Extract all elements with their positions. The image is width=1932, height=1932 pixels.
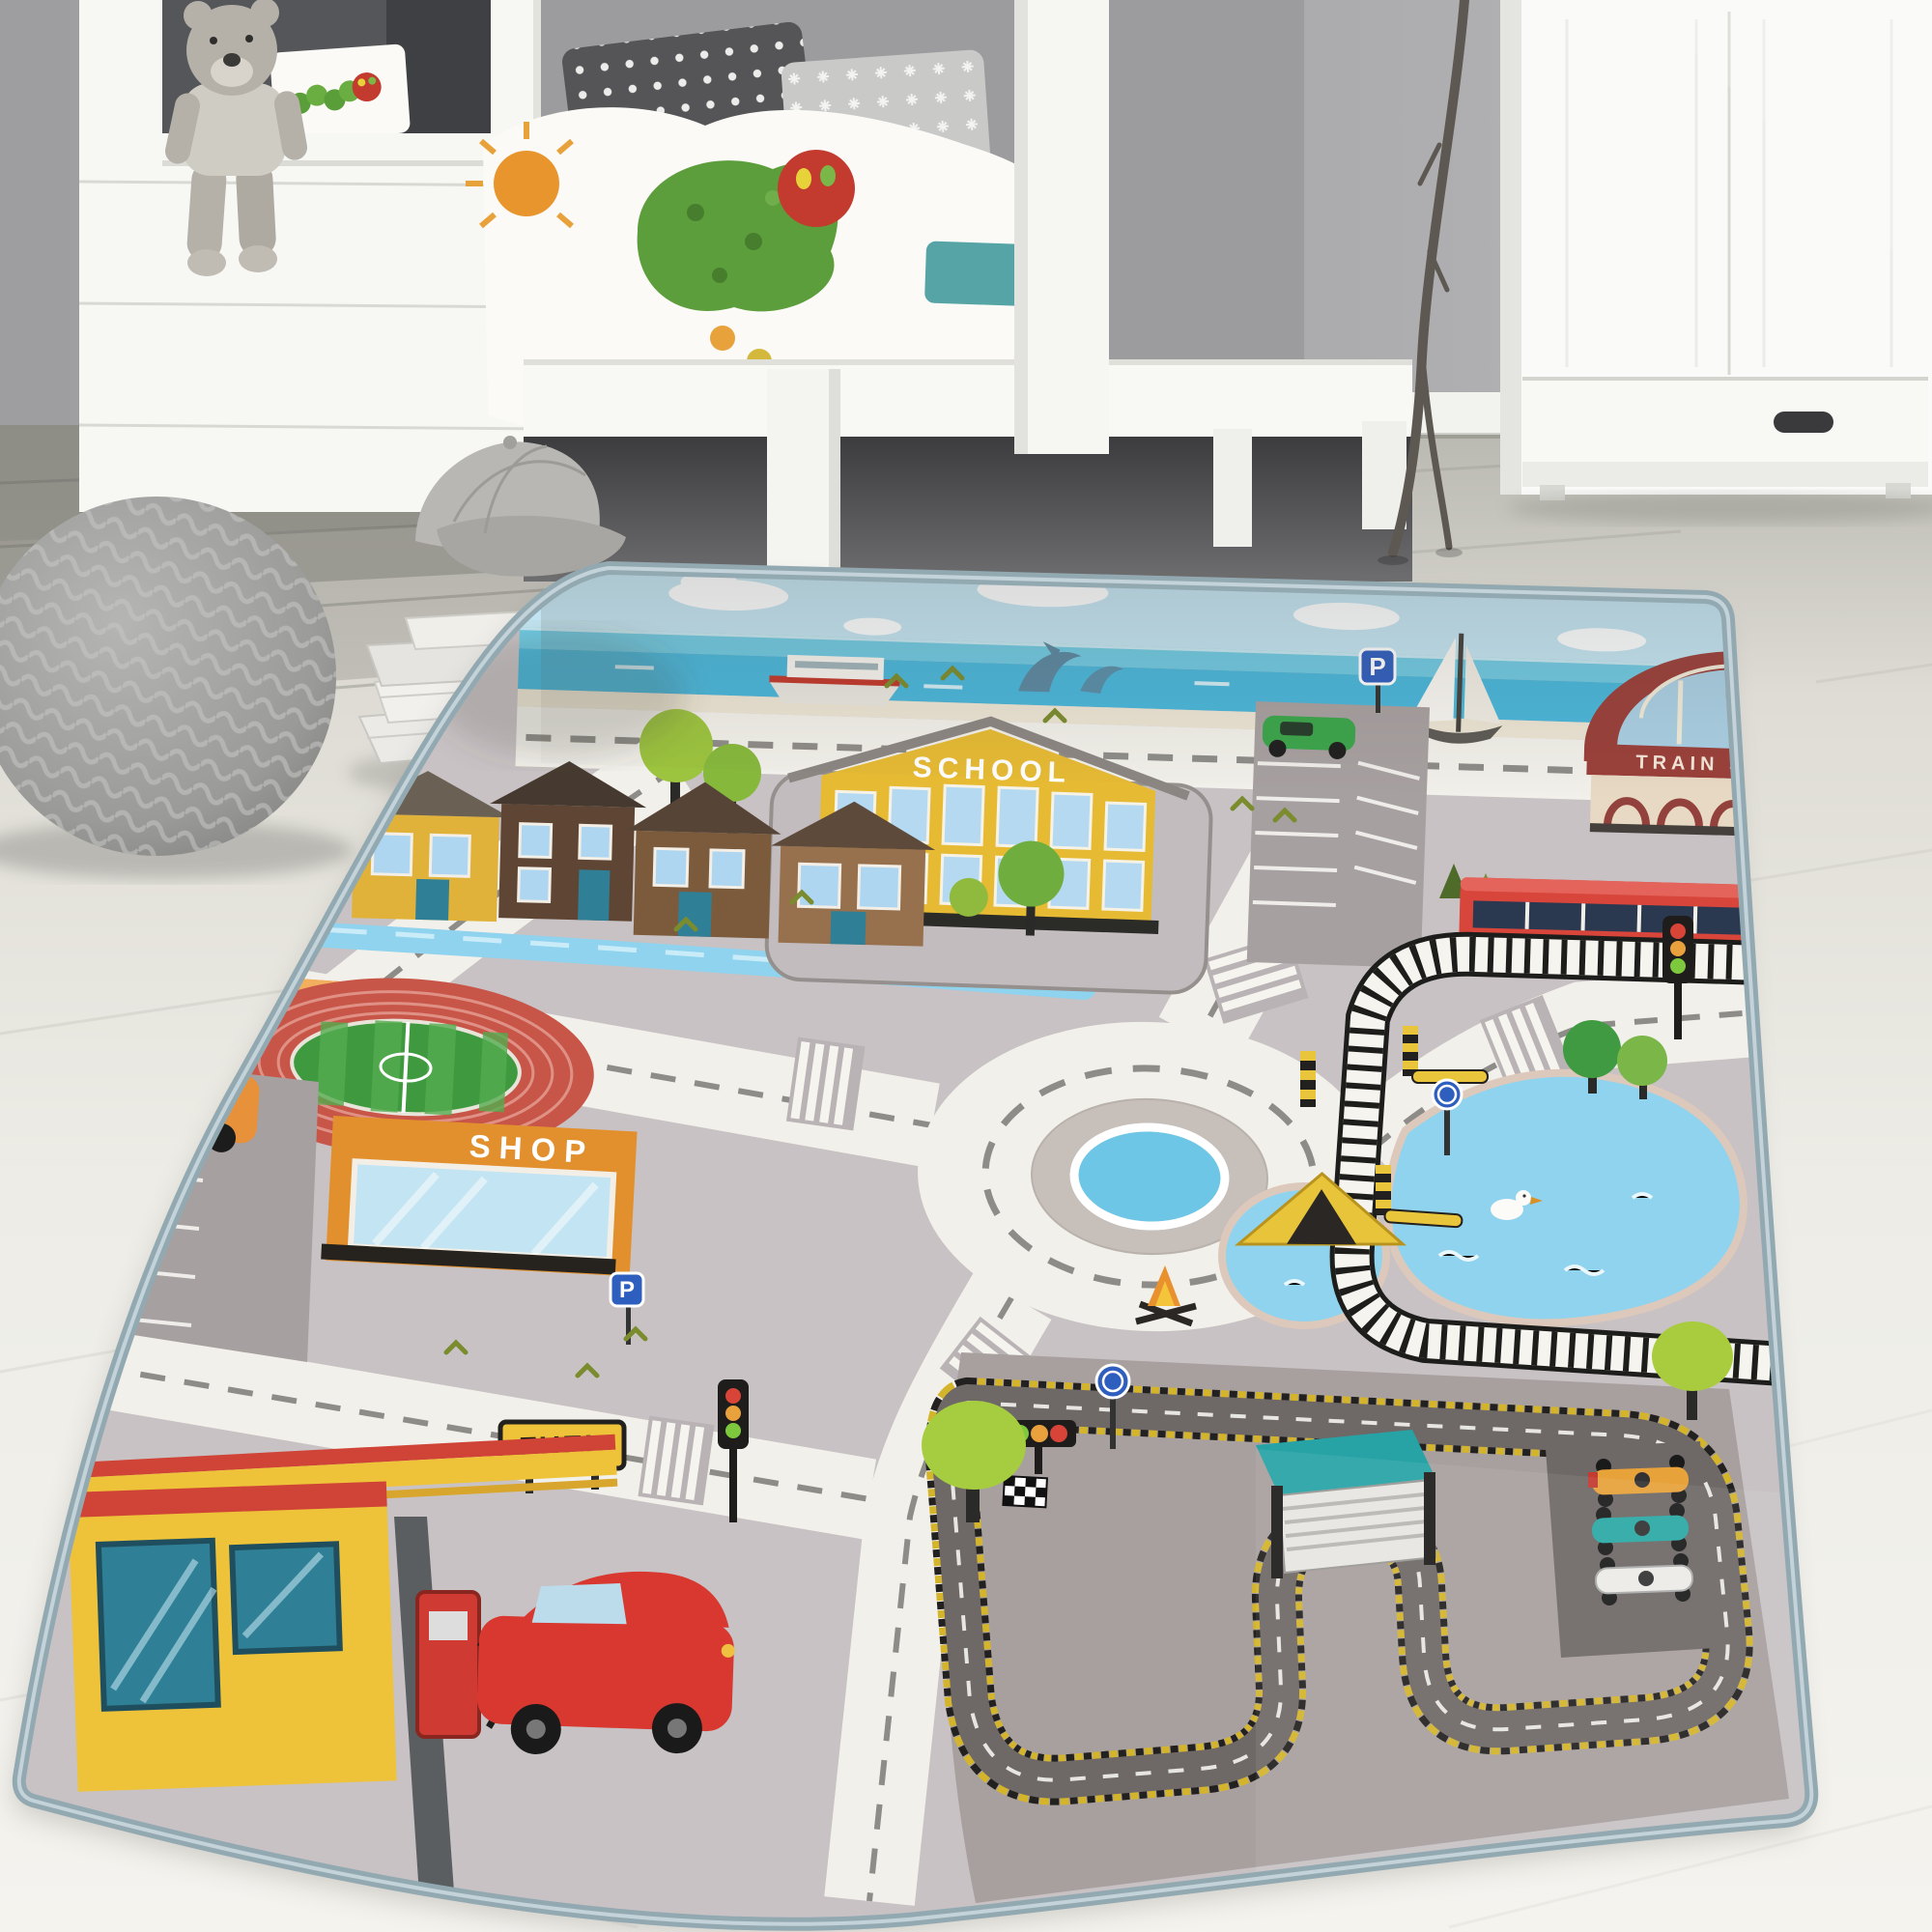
house-bed xyxy=(466,0,1412,582)
wardrobe-drawer xyxy=(1522,379,1928,462)
shop: SHOP xyxy=(321,1116,637,1277)
bunk-bed xyxy=(79,0,549,512)
fuel-kiosk xyxy=(68,1481,397,1791)
roundabout-island xyxy=(1072,1124,1226,1228)
drawer-handle xyxy=(1774,412,1833,433)
bedroom-scene: SCHOOL P xyxy=(0,0,1932,1932)
teddy-sweater xyxy=(182,83,286,176)
bed-post-tall xyxy=(1014,0,1109,454)
bed-platform xyxy=(524,359,1412,440)
under-bed-shadow xyxy=(524,437,1412,582)
shop-label: SHOP xyxy=(469,1127,595,1170)
checkered-flag xyxy=(1003,1476,1047,1507)
bed-leg xyxy=(1213,429,1252,547)
wardrobe xyxy=(1500,0,1932,524)
caterpillar-head xyxy=(778,150,855,227)
parking-sign-2-label: P xyxy=(619,1277,635,1303)
